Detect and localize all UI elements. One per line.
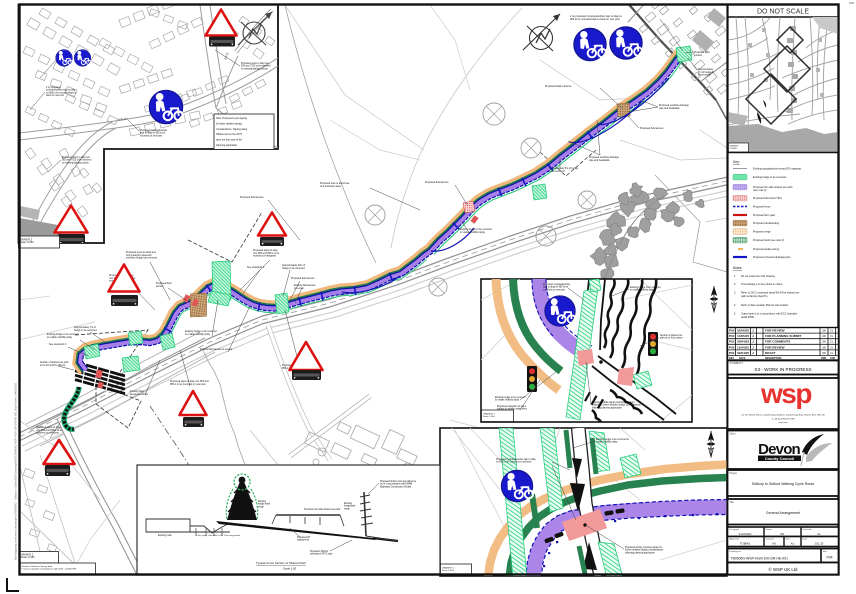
svg-text:4.: 4.: [734, 304, 736, 307]
svg-text:This drawing is to be printed: This drawing is to be printed in colour.: [741, 283, 783, 286]
svg-text:Proposed 3m wide shared use pa: Proposed 3m wide shared use path: [304, 508, 341, 511]
svg-text:GRANITE 3Scale 1:500: GRANITE 3Scale 1:500: [483, 413, 495, 419]
svg-text:CL: CL: [817, 532, 821, 536]
svg-text:FOR REVIEW: FOR REVIEW: [765, 329, 785, 333]
svg-text:FOR COMMENTS: FOR COMMENTS: [765, 340, 790, 344]
svg-text:Proposed DTedging kerb: Proposed DTedging kerb: [297, 536, 311, 542]
svg-text:2 no proposed cycle/pedestrian: 2 no proposed cycle/pedestrian sign to d…: [570, 15, 622, 21]
svg-text:Proposed signs to diag nos953: Proposed signs to diag nos953 and 7012 t…: [62, 156, 92, 164]
svg-text:County Council: County Council: [765, 456, 795, 461]
svg-text:Existing hedge to be removed: Existing hedge to be removed: [753, 176, 787, 179]
svg-text:JW: JW: [780, 532, 784, 536]
svg-text:P04: P04: [729, 334, 735, 338]
svg-text:1.2m verge 1.0m ditch 0.7m: 1.2m verge 1.0m ditch 0.7m 1.0m verge ba…: [196, 534, 241, 537]
svg-text:JW: JW: [822, 340, 826, 344]
svg-text:Checked: Checked: [803, 529, 812, 531]
svg-text:AS: AS: [772, 542, 776, 546]
svg-text:Existing field access to rema: Existing field access to remain: [200, 348, 233, 351]
svg-text:Proposed verge: Proposed verge: [753, 231, 771, 234]
svg-text:Proposed half colour HFS: Proposed half colour HFS: [753, 197, 782, 200]
svg-text:Section of shared usepath to b: Section of shared usepath to be lit by o…: [660, 334, 683, 340]
svg-text:A1: A1: [791, 542, 795, 546]
svg-text:Drawn: Drawn: [766, 528, 773, 531]
svg-text:T+ 44 (0) 1392 817 080: T+ 44 (0) 1392 817 080: [772, 418, 796, 420]
svg-text:Proposed field access: Proposed field access: [291, 277, 315, 280]
svg-text:Scale(s): Scale(s): [766, 539, 774, 541]
svg-text:Notes:: Notes:: [733, 266, 742, 270]
svg-text:Proposed field access: Proposed field access: [640, 127, 664, 130]
svg-text:FOR REVIEW: FOR REVIEW: [765, 345, 785, 349]
svg-text:Drawing no: Drawing no: [730, 550, 742, 553]
svg-text:Proposed culverted drainage pi: Proposed culverted drainage pipe: [753, 256, 791, 259]
svg-text:Date: Date: [803, 538, 808, 541]
svg-text:P03: P03: [729, 340, 735, 344]
svg-text:JUL 25: JUL 25: [815, 542, 824, 546]
svg-text:Approximately 7m ofhedge to be: Approximately 7m ofhedge to be removed: [74, 326, 97, 332]
svg-text:wsp.com: wsp.com: [779, 422, 788, 424]
svg-text:1.: 1.: [734, 275, 736, 278]
svg-text:Scale 1:50: Scale 1:50: [283, 567, 297, 571]
svg-text:General Arrangement: General Arrangement: [766, 511, 800, 515]
svg-text:GRANITE 3Scale 1:500: GRANITE 3Scale 1:500: [442, 567, 454, 573]
svg-text:J: J: [752, 340, 754, 344]
svg-text:P04: P04: [826, 556, 832, 560]
svg-text:02/06/25: 02/06/25: [737, 329, 749, 333]
svg-text:Proposed field entrance: Proposed field entrance: [545, 85, 572, 88]
svg-text:Project: Project: [730, 472, 738, 475]
svg-text:JW: JW: [822, 334, 826, 338]
svg-text:CL: CL: [830, 329, 834, 333]
svg-text:Proposed field access: Proposed field access: [240, 196, 264, 199]
svg-text:J: J: [752, 345, 754, 349]
svg-text:30/04/25: 30/04/25: [737, 340, 749, 344]
svg-text:JW: JW: [822, 329, 826, 333]
svg-text:Proposed hardstanding: Proposed hardstanding: [753, 222, 779, 225]
svg-text:JW: JW: [822, 345, 826, 349]
svg-text:TOBIAS: TOBIAS: [740, 542, 750, 546]
svg-text:P05: P05: [729, 329, 735, 333]
svg-text:See clearpoint 3: See clearpoint 3: [247, 266, 265, 269]
svg-text:Proposed cycle/pedestrian sign: Proposed cycle/pedestrian sign to diagno…: [496, 458, 536, 464]
svg-text:CL: CL: [830, 334, 834, 338]
svg-text:DO NOT SCALE: DO NOT SCALE: [757, 9, 809, 16]
svg-text:wsp: wsp: [760, 378, 811, 409]
svg-text:3.: 3.: [734, 292, 736, 295]
svg-text:5.: 5.: [734, 313, 736, 316]
svg-text:Existing track: Existing track: [158, 534, 173, 537]
svg-text:Proposed field access: Proposed field access: [425, 181, 449, 184]
svg-text:CL: CL: [830, 351, 834, 355]
svg-text:P01: P01: [729, 351, 735, 355]
svg-text:Proposed bank (see note 3): Proposed bank (see note 3): [753, 239, 784, 242]
svg-text:TB0606G-WSP-HGN-100-DR-HE-001: TB0606G-WSP-HGN-100-DR-HE-001: [731, 557, 789, 561]
svg-text:FOR PLANNING SUBMIT: FOR PLANNING SUBMIT: [765, 334, 801, 338]
svg-text:Approximately 10m ofhedge to b: Approximately 10m ofhedge to be removed: [282, 264, 305, 270]
svg-text:S3 - WORK IN PROGRESS: S3 - WORK IN PROGRESS: [754, 367, 811, 372]
svg-text:Sidbury to Sidford Walking Cyc: Sidbury to Sidford Walking Cycle Route: [752, 482, 815, 486]
svg-text:11/04/25: 11/04/25: [737, 345, 749, 349]
svg-text:Client: Client: [730, 433, 736, 436]
svg-text:c/o The Welsh House, Southernh: c/o The Welsh House, Southernhay Gardens…: [741, 414, 825, 417]
svg-text:GRANITE 3Scale 1:1250: GRANITE 3Scale 1:1250: [21, 554, 35, 560]
svg-text:SUITABILITY: SUITABILITY: [730, 362, 744, 365]
svg-text:\\uk.wspgroup.com\central data: \\uk.wspgroup.com\central data\projects\…: [14, 382, 18, 560]
svg-text:J: J: [752, 329, 754, 333]
svg-text:GRANITE 3Scale 1:1250: GRANITE 3Scale 1:1250: [20, 239, 34, 245]
svg-text:Proposed tactile paving: Proposed tactile paving: [753, 248, 780, 251]
svg-text:© WSP UK Ltd: © WSP UK Ltd: [768, 567, 798, 572]
svg-text:Typical Cross Section of Share: Typical Cross Section of Shared Path: [256, 561, 306, 565]
svg-text:2.: 2.: [734, 283, 736, 286]
svg-text:Refer to Site Location Plan fo: Refer to Site Location Plan for site loc…: [741, 304, 789, 307]
svg-text:Key:: Key:: [733, 160, 740, 164]
svg-text:Approved: Approved: [730, 538, 740, 541]
svg-text:Proposed fence: Proposed fence: [753, 206, 771, 209]
svg-text:CL: CL: [830, 340, 834, 344]
svg-text:Title: Title: [730, 501, 735, 504]
svg-text:Existing topographical survey/: Existing topographical survey/GIS mappin…: [753, 168, 801, 171]
svg-text:Designed: Designed: [730, 529, 740, 531]
svg-text:02/04/25: 02/04/25: [737, 351, 749, 355]
svg-text:Section of shared use pathto b: Section of shared use pathto be lit by D…: [40, 361, 69, 367]
svg-text:14/05/25: 14/05/25: [737, 334, 749, 338]
svg-text:Proposed signs to diag nos953: Proposed signs to diag nos953 and 7012 t…: [241, 62, 271, 70]
svg-text:DRAFT: DRAFT: [765, 351, 776, 355]
svg-text:J: J: [752, 351, 754, 355]
svg-text:Proposed signs to diagno's 953: Proposed signs to diagno's 953 and 955-1…: [253, 249, 280, 258]
svg-text:Do not scale from this drawing: Do not scale from this drawing.: [741, 275, 776, 278]
svg-text:S.HOGAN: S.HOGAN: [739, 532, 752, 536]
svg-text:See clearpoint 3: See clearpoint 3: [49, 343, 67, 346]
svg-text:CL: CL: [830, 345, 834, 349]
svg-text:J: J: [752, 334, 754, 338]
svg-text:Proposed farm gate: Proposed farm gate: [753, 214, 776, 217]
svg-text:P02: P02: [729, 345, 735, 349]
svg-text:JW: JW: [822, 351, 826, 355]
